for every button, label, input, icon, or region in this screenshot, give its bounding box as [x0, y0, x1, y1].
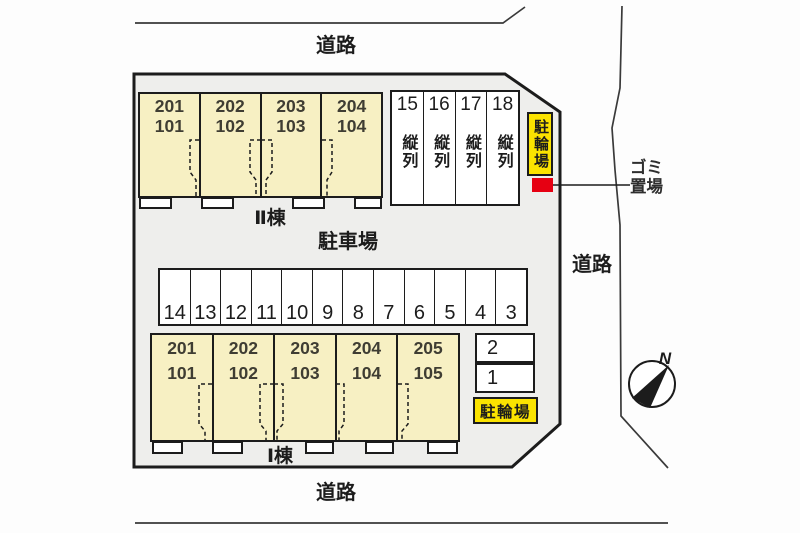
space-number: 16	[429, 94, 450, 116]
unit-number-upper: 204	[352, 336, 381, 361]
parking-space: 4	[466, 270, 497, 324]
building-2-unit: 203 103	[262, 94, 323, 196]
building-2-unit: 204 104	[322, 94, 381, 196]
entrance-porch	[365, 441, 394, 454]
entrance-porch	[354, 197, 382, 209]
unit-number-lower: 103	[276, 116, 305, 136]
parking-space: 9	[313, 270, 344, 324]
compass-north-label: N	[659, 349, 672, 368]
building-2: 201 101 202 102 203 103 204 104	[138, 92, 383, 198]
compass-needle	[632, 365, 669, 408]
bicycle-parking-text: 駐輪場	[480, 400, 531, 422]
compass: N	[629, 349, 675, 408]
unit-number-lower: 102	[216, 116, 245, 136]
parking-space: 7	[374, 270, 405, 324]
tandem-label: 縦列	[462, 134, 480, 170]
tandem-label: 縦列	[494, 134, 512, 170]
bicycle-parking-text: 駐輪場	[530, 119, 550, 170]
unit-number-lower: 105	[414, 361, 443, 386]
unit-number-upper: 202	[229, 336, 258, 361]
unit-number-upper: 203	[290, 336, 319, 361]
parking-lot-label: 駐車場	[303, 231, 393, 253]
tandem-space: 16 縦列	[424, 92, 456, 204]
parking-space: 3	[496, 270, 526, 324]
parking-space: 1	[475, 363, 535, 393]
building-1-unit: 203 103	[275, 335, 337, 440]
parking-space: 8	[343, 270, 374, 324]
unit-number-lower: 104	[337, 116, 366, 136]
parking-space: 6	[405, 270, 436, 324]
tandem-space: 17 縦列	[456, 92, 488, 204]
unit-number-lower: 103	[290, 361, 319, 386]
garbage-area-label: ゴミ 置場	[630, 159, 676, 197]
parking-space: 11	[252, 270, 283, 324]
bicycle-parking-sign-bottom: 駐輪場	[473, 397, 538, 424]
unit-number-lower: 104	[352, 361, 381, 386]
road-label-bottom: 道路	[306, 482, 366, 504]
entrance-porch	[212, 441, 243, 454]
space-number: 15	[397, 94, 418, 116]
building-1-label: Ⅰ棟	[250, 446, 310, 468]
tandem-label: 縦列	[430, 134, 448, 170]
compass-circle	[629, 361, 675, 407]
tandem-space: 15 縦列	[392, 92, 424, 204]
garbage-spot-marker	[532, 178, 553, 192]
building-1-unit: 202 102	[214, 335, 276, 440]
entrance-porch	[201, 197, 234, 209]
parking-space: 2	[475, 333, 535, 363]
entrance-porch	[427, 441, 458, 454]
parking-space: 12	[221, 270, 252, 324]
unit-number-upper: 204	[337, 96, 366, 116]
unit-number-lower: 101	[155, 116, 184, 136]
tandem-parking-block: 15 縦列 16 縦列 17 縦列 18 縦列	[390, 90, 520, 206]
garbage-label-line1: ゴミ	[630, 159, 676, 178]
site-plan-linework: N	[0, 0, 800, 533]
unit-number-upper: 201	[167, 336, 196, 361]
unit-number-upper: 203	[276, 96, 305, 116]
building-1-unit: 204 104	[337, 335, 399, 440]
building-2-unit: 201 101	[140, 94, 201, 196]
garbage-label-line2: 置場	[630, 178, 676, 197]
tandem-label: 縦列	[398, 134, 416, 170]
building-1: 201 101 202 102 203 103 204 104 205 105	[150, 333, 460, 442]
entrance-porch	[139, 197, 172, 209]
unit-number-upper: 202	[216, 96, 245, 116]
unit-number-upper: 201	[155, 96, 184, 116]
parking-space: 5	[435, 270, 466, 324]
building-2-label: Ⅱ棟	[240, 208, 300, 230]
road-label-top: 道路	[306, 35, 366, 57]
space-number: 17	[460, 94, 481, 116]
space-number: 18	[492, 94, 513, 116]
building-1-unit: 205 105	[398, 335, 458, 440]
building-dashed-lines	[0, 0, 800, 533]
parking-space: 14	[160, 270, 191, 324]
unit-number-upper: 205	[414, 336, 443, 361]
entrance-porch	[152, 441, 183, 454]
unit-number-lower: 101	[167, 361, 196, 386]
road-line-top	[135, 7, 525, 23]
parking-space: 13	[191, 270, 222, 324]
tandem-space: 18 縦列	[487, 92, 518, 204]
road-line-right	[612, 6, 668, 468]
building-1-unit: 201 101	[152, 335, 214, 440]
bicycle-parking-sign-top: 駐輪場	[527, 112, 553, 176]
parking-row: 14 13 12 11 10 9 8 7 6 5 4 3	[158, 268, 528, 326]
unit-number-lower: 102	[229, 361, 258, 386]
road-label-right: 道路	[566, 254, 618, 276]
site-plan: N 道路 道路 道路 201 101 202 102 203 103 204 1…	[0, 0, 800, 533]
parking-space: 10	[282, 270, 313, 324]
building-2-unit: 202 102	[201, 94, 262, 196]
